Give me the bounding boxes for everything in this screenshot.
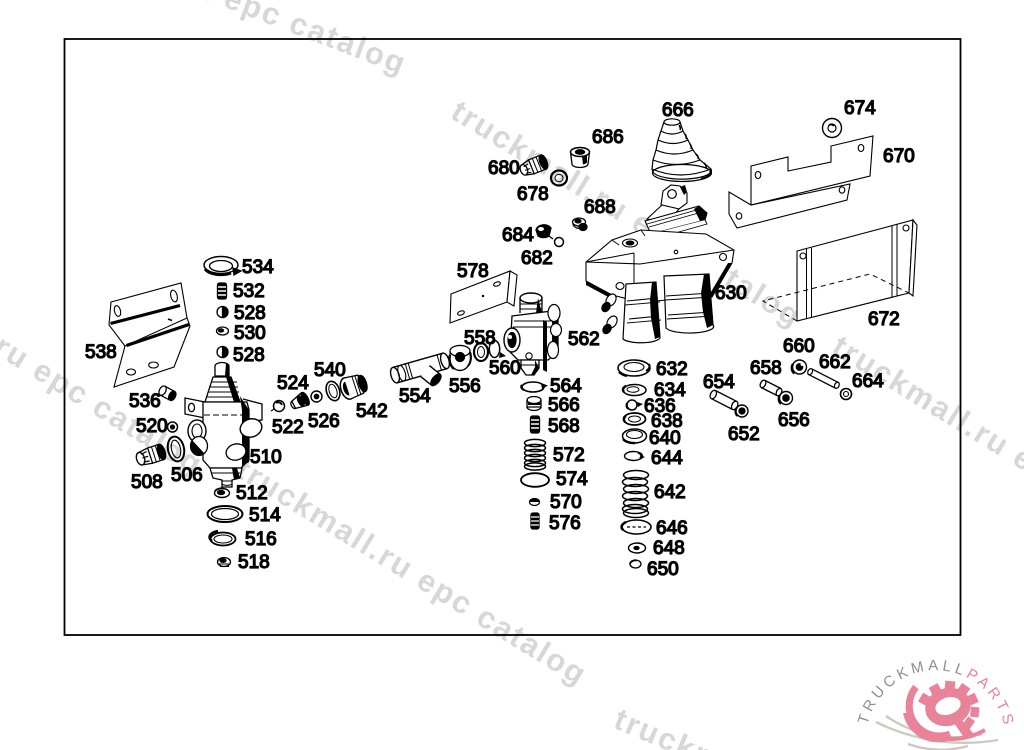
svg-text:524: 524	[277, 373, 309, 394]
svg-text:644: 644	[651, 448, 683, 469]
svg-text:564: 564	[550, 376, 582, 397]
svg-text:666: 666	[662, 100, 694, 121]
svg-text:508: 508	[131, 472, 163, 493]
svg-text:574: 574	[556, 469, 588, 490]
svg-text:542: 542	[356, 401, 388, 422]
svg-text:670: 670	[883, 146, 915, 167]
svg-text:660: 660	[783, 336, 815, 357]
svg-text:658: 658	[750, 358, 782, 379]
svg-text:536: 536	[129, 391, 161, 412]
svg-text:506: 506	[171, 465, 203, 486]
svg-text:678: 678	[517, 184, 549, 205]
svg-text:516: 516	[245, 529, 277, 550]
svg-text:520: 520	[136, 416, 168, 437]
svg-text:540: 540	[314, 360, 346, 381]
svg-text:648: 648	[653, 538, 685, 559]
svg-text:528: 528	[233, 345, 265, 366]
svg-text:526: 526	[308, 411, 340, 432]
svg-text:514: 514	[249, 505, 281, 526]
svg-text:566: 566	[548, 395, 580, 416]
svg-text:558: 558	[464, 328, 496, 349]
svg-text:534: 534	[242, 257, 274, 278]
svg-text:528: 528	[234, 303, 266, 324]
svg-text:578: 578	[457, 261, 489, 282]
svg-text:518: 518	[238, 552, 270, 573]
svg-text:530: 530	[234, 323, 266, 344]
svg-text:686: 686	[592, 127, 624, 148]
svg-text:572: 572	[553, 445, 585, 466]
svg-text:656: 656	[778, 410, 810, 431]
svg-text:672: 672	[868, 309, 900, 330]
svg-text:688: 688	[584, 197, 616, 218]
svg-text:682: 682	[521, 248, 553, 269]
svg-text:630: 630	[715, 283, 747, 304]
svg-text:650: 650	[647, 559, 679, 580]
svg-text:568: 568	[548, 416, 580, 437]
svg-text:562: 562	[568, 329, 600, 350]
svg-text:662: 662	[819, 352, 851, 373]
svg-text:680: 680	[488, 158, 520, 179]
svg-text:556: 556	[449, 376, 481, 397]
svg-text:652: 652	[728, 424, 760, 445]
svg-text:554: 554	[399, 386, 431, 407]
svg-text:640: 640	[649, 428, 681, 449]
svg-text:632: 632	[656, 359, 688, 380]
svg-text:646: 646	[656, 518, 688, 539]
svg-text:684: 684	[502, 225, 534, 246]
svg-text:654: 654	[703, 372, 735, 393]
svg-text:576: 576	[549, 513, 581, 534]
svg-text:674: 674	[844, 98, 876, 119]
svg-text:512: 512	[236, 483, 268, 504]
svg-text:510: 510	[250, 447, 282, 468]
svg-text:522: 522	[272, 417, 304, 438]
svg-text:538: 538	[85, 342, 117, 363]
svg-text:532: 532	[233, 281, 265, 302]
svg-text:664: 664	[852, 371, 884, 392]
svg-text:570: 570	[550, 492, 582, 513]
svg-text:642: 642	[654, 482, 686, 503]
svg-text:560: 560	[489, 358, 521, 379]
